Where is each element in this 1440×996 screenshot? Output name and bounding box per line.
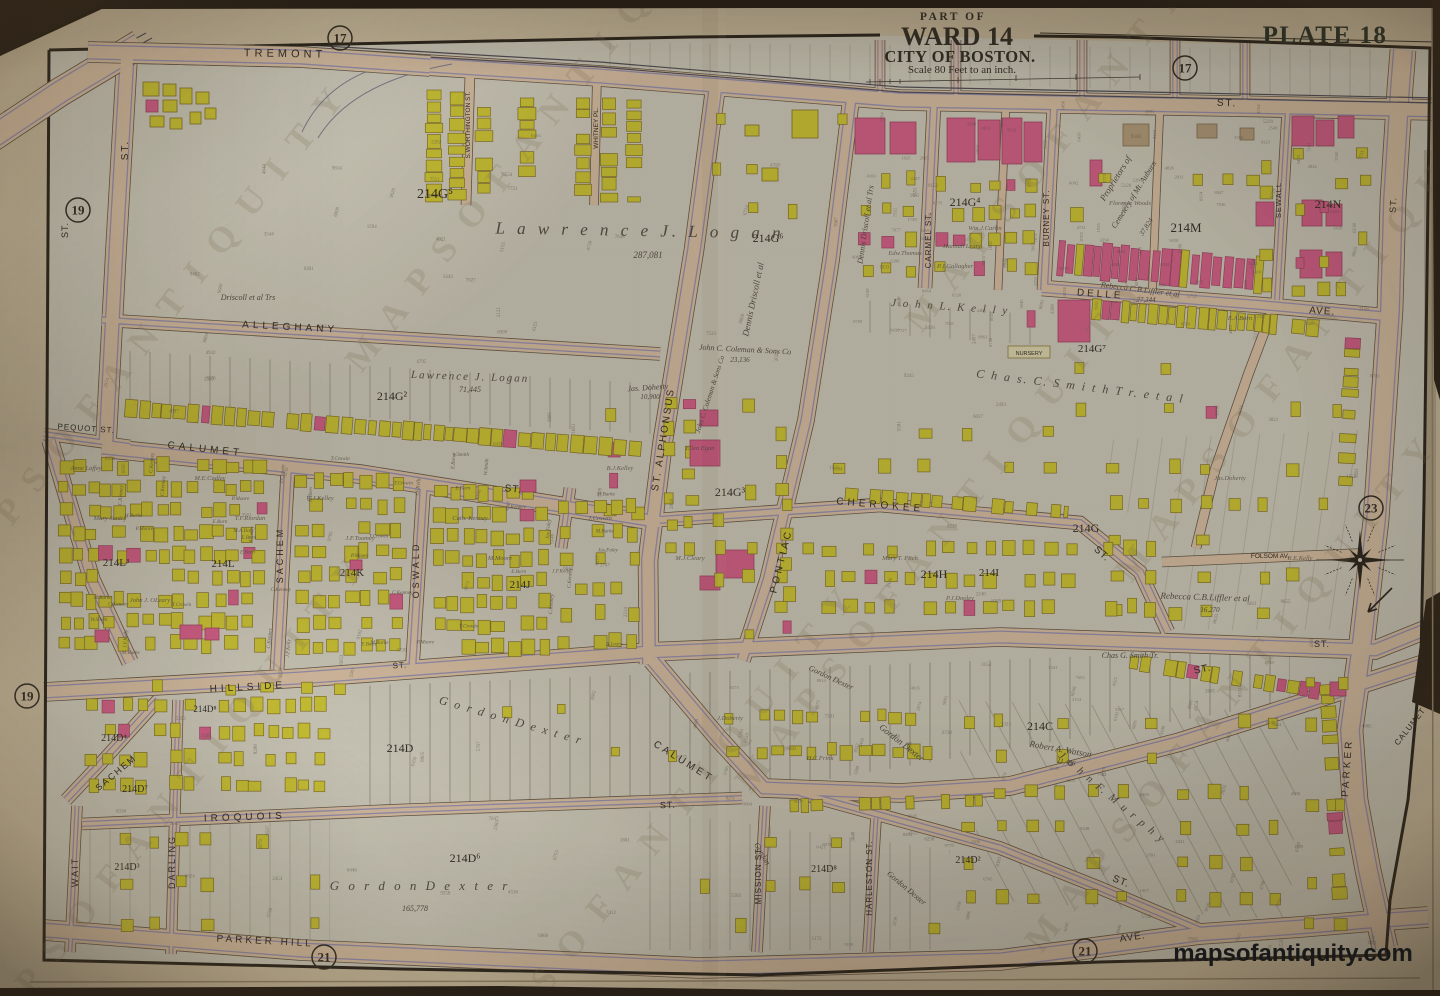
svg-text:mapsofantiquity.com: mapsofantiquity.com: [1173, 940, 1413, 967]
